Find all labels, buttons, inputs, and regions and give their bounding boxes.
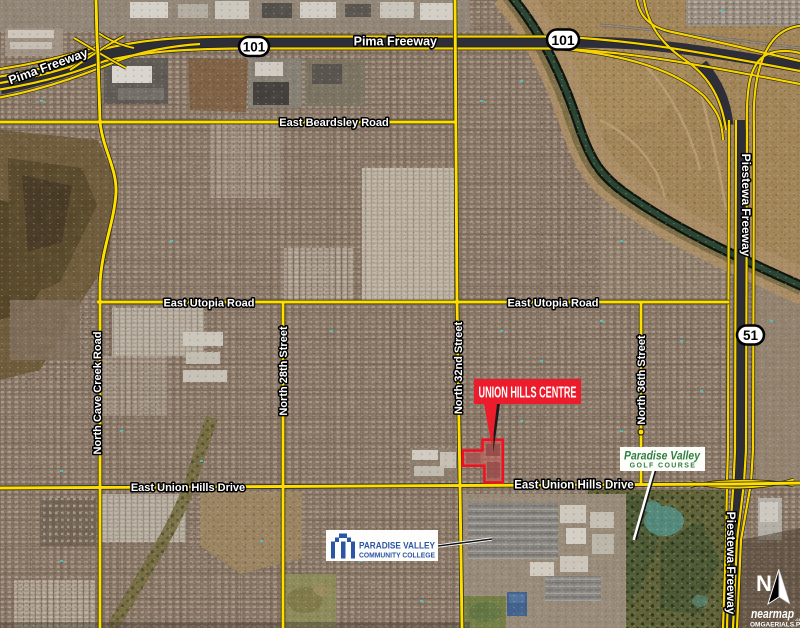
svg-text:East Utopia Road: East Utopia Road [507, 298, 598, 310]
svg-text:Pima Freeway: Pima Freeway [354, 35, 437, 49]
svg-text:East Utopia Road: East Utopia Road [163, 298, 254, 310]
svg-text:North 36th Street: North 36th Street [636, 335, 648, 425]
svg-text:Piestewa Freeway: Piestewa Freeway [739, 154, 753, 257]
svg-text:East Union Hills Drive: East Union Hills Drive [131, 482, 245, 494]
svg-text:North 32nd Street: North 32nd Street [453, 322, 465, 415]
svg-text:GOLF COURSE: GOLF COURSE [630, 463, 697, 470]
svg-text:101: 101 [243, 40, 266, 55]
svg-text:Paradise Valley: Paradise Valley [624, 449, 701, 463]
svg-text:OMGAERIALS.PRO: OMGAERIALS.PRO [750, 622, 800, 628]
svg-text:North Cave Creek Road: North Cave Creek Road [92, 332, 104, 455]
svg-text:PARADISE VALLEY: PARADISE VALLEY [359, 541, 435, 551]
svg-text:N: N [756, 571, 772, 596]
svg-text:nearmap: nearmap [751, 607, 794, 621]
svg-text:Piestewa Freeway: Piestewa Freeway [724, 512, 738, 615]
svg-text:East Beardsley Road: East Beardsley Road [279, 117, 388, 129]
svg-text:UNION HILLS CENTRE: UNION HILLS CENTRE [479, 385, 577, 402]
svg-text:101: 101 [551, 32, 575, 48]
svg-text:51: 51 [743, 328, 759, 343]
svg-text:North 28th Street: North 28th Street [278, 326, 290, 416]
svg-text:COMMUNITY COLLEGE: COMMUNITY COLLEGE [359, 551, 435, 560]
svg-text:East Union Hills Drive: East Union Hills Drive [514, 480, 634, 492]
